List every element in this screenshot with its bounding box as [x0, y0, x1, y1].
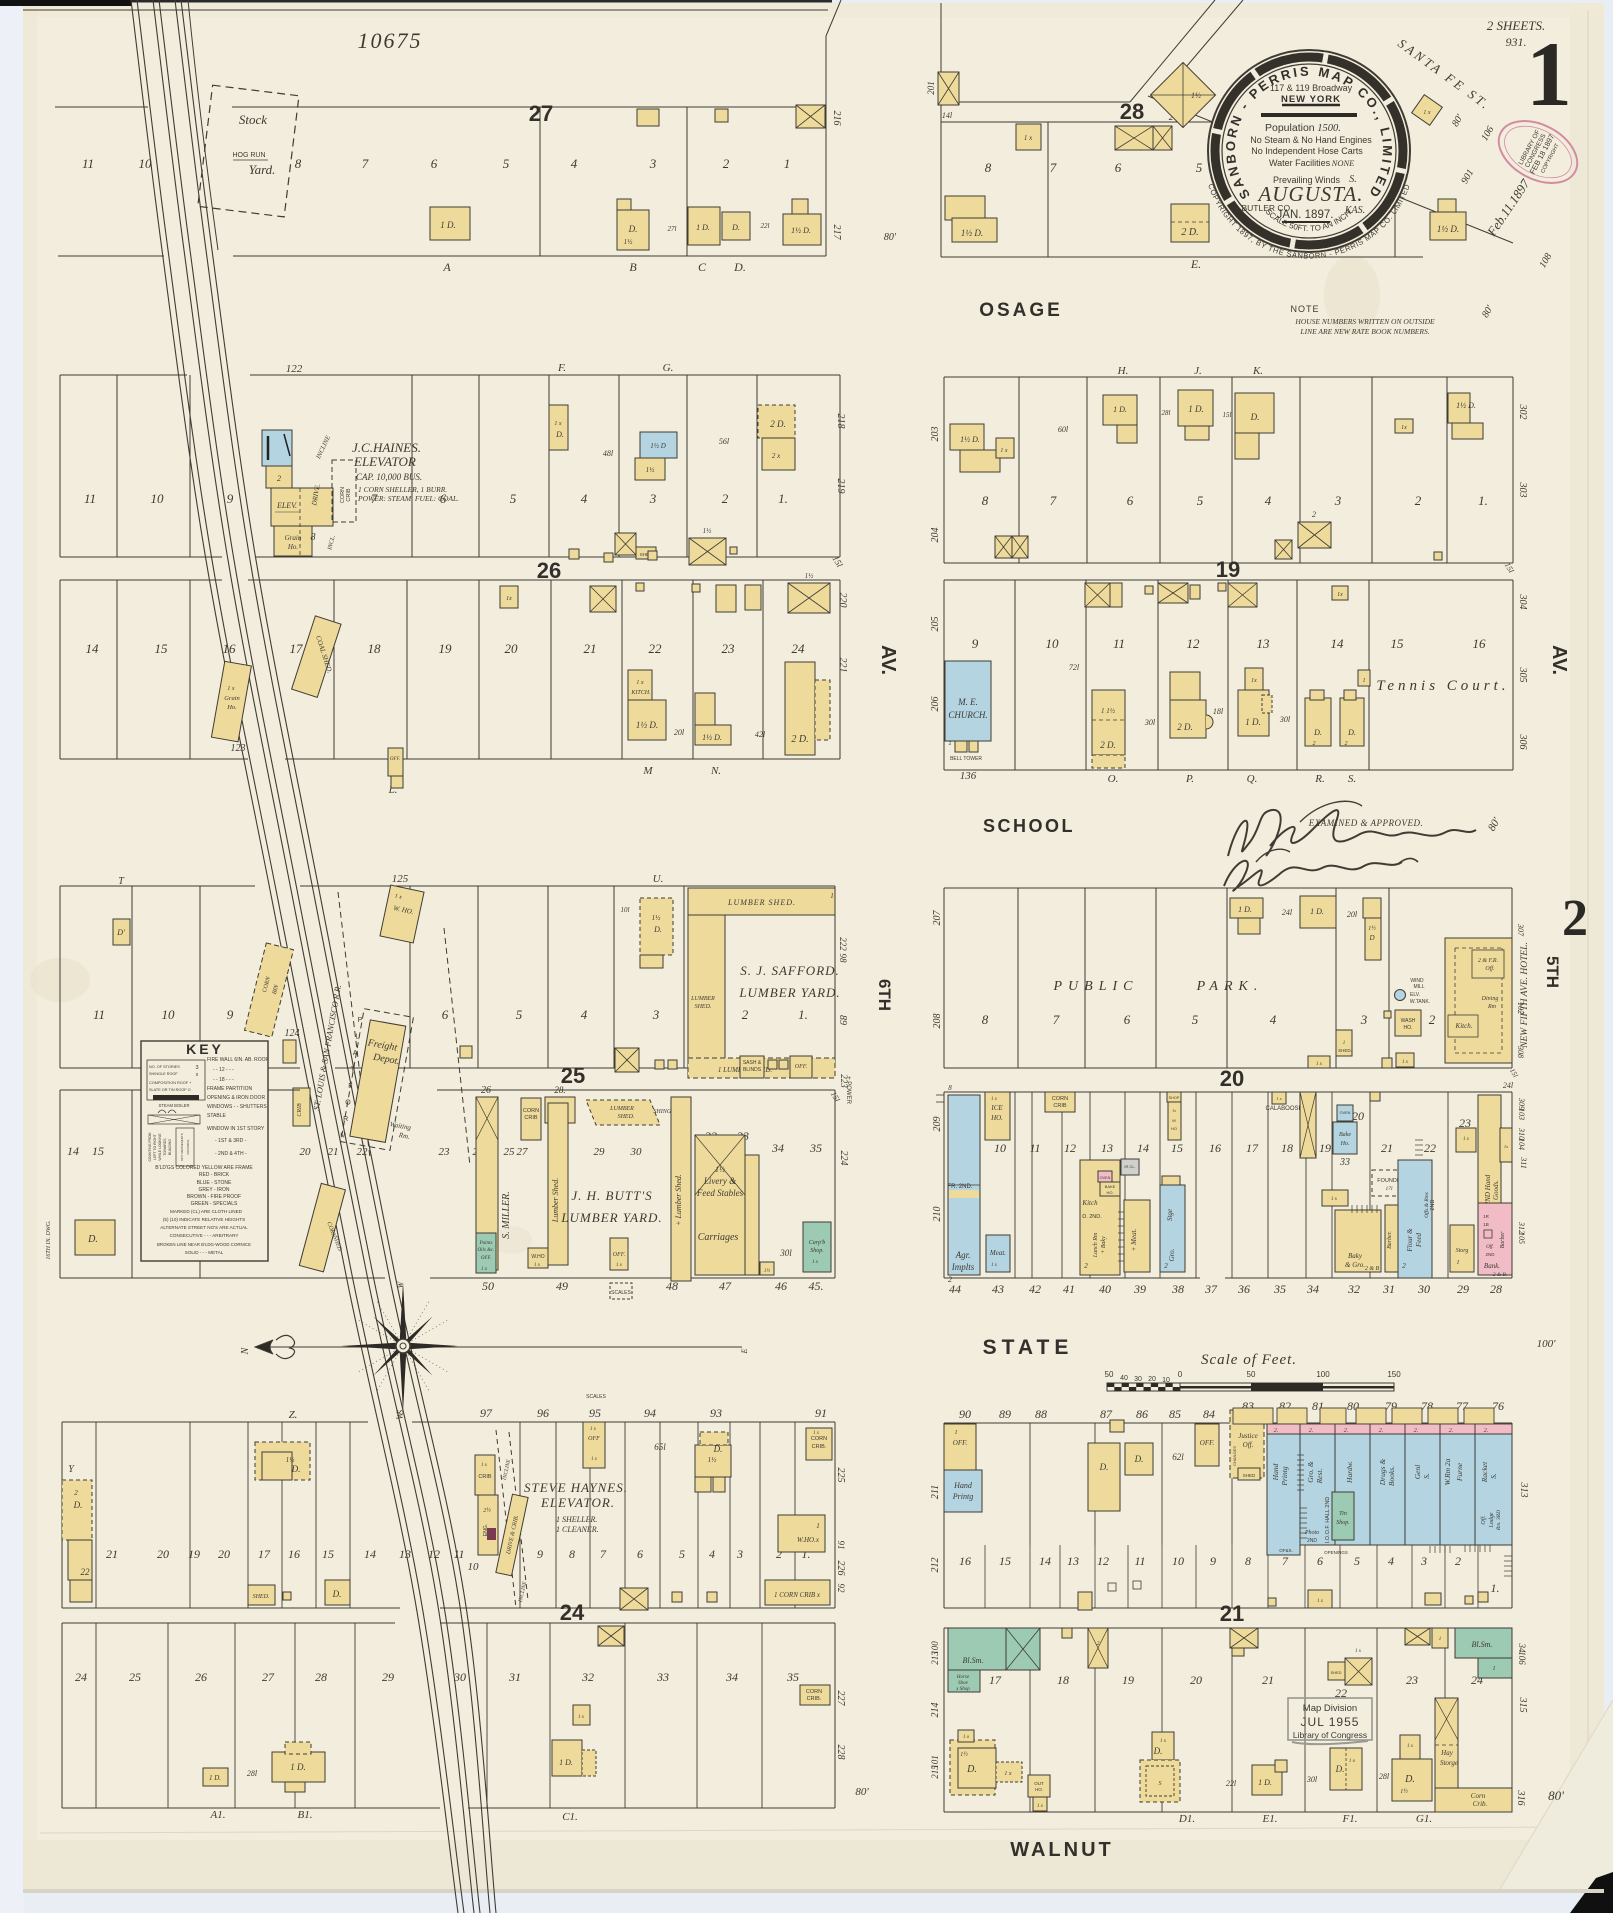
svg-text:A1.: A1.: [210, 1809, 226, 1821]
svg-text:Water Facilities: Water Facilities: [1269, 158, 1331, 168]
svg-text:97: 97: [480, 1406, 493, 1420]
svg-text:212: 212: [930, 1558, 941, 1573]
svg-text:B1.: B1.: [298, 1809, 313, 1821]
svg-text:38: 38: [1171, 1282, 1184, 1296]
svg-text:24: 24: [560, 1600, 585, 1625]
svg-text:1 x: 1 x: [991, 1097, 998, 1102]
svg-text:14l: 14l: [942, 111, 953, 120]
svg-text:1 D.: 1 D.: [290, 1762, 306, 1772]
svg-text:95: 95: [589, 1406, 601, 1420]
svg-text:311: 311: [1519, 1156, 1528, 1168]
svg-text:Q.: Q.: [1247, 773, 1258, 785]
svg-text:D.: D.: [713, 1444, 723, 1454]
svg-text:26: 26: [537, 558, 561, 583]
svg-text:16TH IN. DWG.: 16TH IN. DWG.: [46, 1220, 52, 1259]
svg-text:K.: K.: [1252, 365, 1263, 377]
svg-text:20l: 20l: [1347, 910, 1358, 919]
svg-text:10: 10: [151, 491, 165, 506]
svg-text:FIRE WALL 6IN. AB. ROOF: FIRE WALL 6IN. AB. ROOF: [207, 1057, 269, 1063]
svg-text:2: 2: [742, 1007, 749, 1022]
svg-text:13: 13: [1257, 636, 1271, 651]
svg-text:OF&S.: OF&S.: [1279, 1548, 1293, 1553]
svg-text:1½: 1½: [652, 914, 662, 922]
svg-text:1½ D.: 1½ D.: [791, 226, 811, 235]
svg-text:1: 1: [955, 1430, 958, 1436]
svg-text:2.: 2.: [1414, 1428, 1419, 1434]
svg-text:136: 136: [960, 770, 977, 782]
svg-text:TOWARDS: TOWARDS: [163, 1138, 167, 1156]
svg-text:D.: D.: [1134, 1454, 1144, 1464]
svg-text:2: 2: [1429, 1012, 1436, 1027]
svg-text:14: 14: [86, 641, 100, 656]
svg-text:7: 7: [1053, 1012, 1060, 1027]
svg-text:SHOP: SHOP: [1169, 1096, 1180, 1100]
svg-text:+ POWER: + POWER: [845, 1076, 851, 1105]
svg-text:24: 24: [792, 641, 806, 656]
svg-text:8: 8: [985, 160, 992, 175]
svg-text:Carp'b: Carp'b: [809, 1240, 826, 1246]
svg-text:JUL 1955: JUL 1955: [1301, 1715, 1360, 1729]
svg-text:125: 125: [392, 873, 409, 885]
svg-text:15: 15: [999, 1554, 1011, 1568]
svg-text:7: 7: [1282, 1554, 1289, 1568]
svg-text:1x: 1x: [1251, 678, 1257, 684]
svg-text:2: 2: [1562, 890, 1588, 947]
svg-text:2ND Hand: 2ND Hand: [1484, 1174, 1492, 1205]
svg-text:Livery &: Livery &: [703, 1176, 736, 1186]
svg-text:1 CLEANER.: 1 CLEANER.: [556, 1525, 599, 1534]
svg-text:100: 100: [1316, 1370, 1330, 1379]
svg-text:30: 30: [453, 1670, 466, 1684]
svg-text:204: 204: [930, 528, 941, 543]
svg-text:HO.: HO.: [990, 1114, 1003, 1122]
svg-text:KITCH.: KITCH.: [630, 690, 650, 696]
svg-text:LUMBER YARD.: LUMBER YARD.: [560, 1210, 662, 1225]
svg-text:HOG RUN: HOG RUN: [232, 152, 265, 159]
svg-text:LUMBER SHED.: LUMBER SHED.: [727, 898, 796, 907]
svg-text:1: 1: [1493, 1666, 1496, 1672]
svg-text:18: 18: [1057, 1673, 1069, 1687]
svg-text:- - 18 - - -: - - 18 - - -: [213, 1077, 234, 1083]
svg-text:CORN: CORN: [523, 1108, 539, 1114]
svg-text:J.: J.: [1194, 365, 1202, 377]
svg-text:1 o: 1 o: [963, 1735, 970, 1740]
svg-text:21: 21: [1220, 1601, 1244, 1626]
svg-text:SLATE OR TIN ROOF O: SLATE OR TIN ROOF O: [149, 1088, 191, 1092]
svg-text:CRIB: CRIB: [524, 1115, 537, 1121]
svg-text:220: 220: [837, 593, 848, 608]
svg-text:O.: O.: [1108, 773, 1119, 785]
svg-text:14: 14: [364, 1547, 376, 1561]
svg-text:1: 1: [816, 1522, 820, 1530]
svg-text:48l: 48l: [603, 449, 614, 458]
svg-text:D.: D.: [73, 1500, 83, 1510]
svg-text:26: 26: [481, 1085, 491, 1096]
svg-text:1½: 1½: [1368, 925, 1376, 932]
svg-text:Rm: Rm: [1487, 1004, 1497, 1010]
svg-text:Grain: Grain: [285, 534, 302, 542]
svg-text:49: 49: [556, 1279, 568, 1293]
svg-text:28.: 28.: [554, 1085, 565, 1095]
svg-text:10675: 10675: [358, 28, 423, 53]
svg-text:2.: 2.: [1484, 1428, 1489, 1434]
svg-text:D.: D.: [291, 1464, 301, 1474]
svg-text:2 D.: 2 D.: [1177, 722, 1193, 732]
svg-text:303: 303: [1517, 482, 1528, 498]
svg-text:1x: 1x: [1504, 1144, 1508, 1149]
svg-text:29: 29: [382, 1670, 394, 1684]
svg-text:G.: G.: [663, 362, 674, 374]
svg-text:117 & 119 Broadway: 117 & 119 Broadway: [1270, 83, 1353, 93]
svg-text:1½: 1½: [960, 1751, 968, 1758]
svg-text:1x: 1x: [1172, 1108, 1176, 1113]
svg-text:R.: R.: [1314, 773, 1324, 785]
svg-text:14: 14: [1331, 636, 1345, 651]
svg-text:20: 20: [218, 1547, 230, 1561]
svg-text:10: 10: [162, 1007, 176, 1022]
svg-text:315: 315: [1517, 1697, 1528, 1713]
svg-text:GREEN - SPECIALS: GREEN - SPECIALS: [191, 1201, 238, 1207]
svg-text:Drugs &: Drugs &: [1378, 1459, 1387, 1487]
svg-text:Off.: Off.: [1486, 1245, 1494, 1250]
svg-text:1½ D.: 1½ D.: [1456, 401, 1476, 410]
svg-text:Ho.: Ho.: [287, 543, 299, 551]
svg-text:D: D: [1368, 934, 1374, 942]
svg-text:1 D.: 1 D.: [1188, 404, 1204, 414]
svg-text:214: 214: [930, 1703, 941, 1718]
svg-text:4: 4: [1265, 493, 1272, 508]
svg-text:5: 5: [503, 156, 510, 171]
svg-text:Rest.: Rest.: [1315, 1468, 1324, 1484]
svg-text:1 x: 1 x: [554, 421, 562, 427]
svg-text:MILL: MILL: [1413, 984, 1424, 990]
svg-text:x Shop: x Shop: [955, 1687, 970, 1692]
svg-text:42l: 42l: [755, 730, 766, 739]
svg-text:3: 3: [649, 491, 657, 506]
svg-text:104: 104: [1517, 1138, 1526, 1150]
svg-text:1½: 1½: [646, 466, 656, 474]
svg-text:42: 42: [1029, 1282, 1041, 1296]
svg-text:Ho.: Ho.: [226, 704, 237, 711]
svg-text:2.: 2.: [1379, 1428, 1384, 1434]
svg-text:F1.: F1.: [1342, 1813, 1358, 1825]
svg-text:3: 3: [195, 1065, 198, 1071]
svg-text:SHED: SHED: [1330, 1670, 1341, 1675]
svg-text:17: 17: [258, 1547, 271, 1561]
svg-text:15: 15: [1391, 636, 1405, 651]
svg-text:14: 14: [67, 1144, 79, 1158]
svg-text:36: 36: [1237, 1282, 1250, 1296]
svg-text:W.TANK.: W.TANK.: [1410, 999, 1430, 1005]
svg-text:60l: 60l: [1058, 425, 1069, 434]
svg-text:D': D': [116, 928, 125, 937]
svg-text:3: 3: [1420, 1554, 1427, 1568]
svg-text:SHINGLE ROOF: SHINGLE ROOF: [149, 1072, 178, 1076]
svg-text:20: 20: [505, 641, 519, 656]
svg-text:1½: 1½: [805, 572, 815, 580]
svg-text:1 D.: 1 D.: [1310, 907, 1324, 916]
svg-text:Horse: Horse: [956, 1675, 970, 1680]
svg-text:1: 1: [1526, 23, 1572, 125]
svg-text:Hand: Hand: [1271, 1463, 1280, 1481]
svg-text:BROWN - FIRE PROOF: BROWN - FIRE PROOF: [187, 1194, 241, 1200]
svg-text:28: 28: [1490, 1282, 1502, 1296]
svg-text:OFF.: OFF.: [481, 1256, 492, 1261]
svg-text:P.: P.: [1185, 773, 1194, 785]
svg-text:50: 50: [1247, 1370, 1256, 1379]
svg-text:NO. OF STORIES: NO. OF STORIES: [149, 1065, 180, 1069]
svg-text:Stge: Stge: [1166, 1209, 1174, 1221]
svg-text:1½ D.: 1½ D.: [702, 733, 722, 742]
svg-text:2: 2: [948, 1275, 952, 1284]
svg-text:304: 304: [1517, 594, 1528, 610]
svg-text:Flour &: Flour &: [1406, 1228, 1414, 1253]
svg-text:18l: 18l: [1213, 707, 1224, 716]
svg-text:4: 4: [581, 491, 588, 506]
svg-text:+ Baky: + Baky: [1101, 1236, 1107, 1254]
svg-text:Agr.: Agr.: [955, 1250, 971, 1260]
svg-text:- - 12 - - -: - - 12 - - -: [213, 1067, 234, 1073]
svg-text:C: C: [698, 260, 707, 274]
svg-text:FOUNDN: FOUNDN: [1377, 1178, 1401, 1184]
svg-text:LUMBER YARD.: LUMBER YARD.: [738, 985, 840, 1000]
svg-text:Implts: Implts: [951, 1262, 975, 1272]
svg-text:16: 16: [223, 641, 237, 656]
svg-text:2.: 2.: [1309, 1428, 1314, 1434]
svg-text:1 CORN SHELLER, 1 BURR.: 1 CORN SHELLER, 1 BURR.: [358, 485, 447, 494]
svg-text:Kitch.: Kitch.: [1455, 1022, 1473, 1030]
svg-text:ELEVATOR: ELEVATOR: [353, 454, 416, 469]
svg-text:4: 4: [581, 1007, 588, 1022]
svg-text:1 x: 1 x: [1000, 448, 1008, 454]
svg-text:28: 28: [1120, 99, 1144, 124]
svg-text:201: 201: [926, 81, 936, 95]
svg-text:2 & B.: 2 & B.: [1493, 1272, 1508, 1278]
svg-text:Offs.& Rms: Offs.& Rms: [1423, 1192, 1430, 1218]
svg-text:210: 210: [932, 1207, 943, 1222]
svg-text:20: 20: [1352, 1109, 1364, 1123]
svg-text:D. 2ND.: D. 2ND.: [1082, 1214, 1102, 1220]
svg-text:39: 39: [1133, 1282, 1146, 1296]
svg-text:Bake: Bake: [1339, 1132, 1351, 1138]
svg-text:3: 3: [652, 1007, 660, 1022]
svg-text:1 x: 1 x: [1037, 1804, 1044, 1809]
svg-text:D1.: D1.: [1178, 1813, 1195, 1825]
svg-text:28: 28: [315, 1670, 327, 1684]
svg-text:SHED.: SHED.: [253, 1594, 270, 1600]
svg-text:SHED.: SHED.: [1338, 1048, 1352, 1053]
svg-text:1: 1: [830, 892, 834, 900]
svg-text:OUT: OUT: [1034, 1781, 1044, 1786]
svg-text:Barber.: Barber.: [1387, 1231, 1393, 1249]
svg-text:D.: D.: [555, 430, 564, 439]
svg-text:1½ D.: 1½ D.: [961, 228, 983, 238]
svg-text:1 x: 1 x: [812, 1260, 819, 1265]
svg-text:10: 10: [994, 1141, 1006, 1155]
svg-text:47: 47: [719, 1279, 732, 1293]
svg-text:ALTERNATE STREET NO'S ARE ACTU: ALTERNATE STREET NO'S ARE ACTUAL: [160, 1225, 248, 1230]
svg-text:+ Meat.: + Meat.: [1130, 1228, 1138, 1251]
svg-text:23: 23: [439, 1146, 451, 1158]
svg-text:87: 87: [1100, 1407, 1113, 1421]
svg-text:1 x: 1 x: [1463, 1137, 1470, 1142]
svg-text:HO: HO: [1171, 1126, 1177, 1131]
svg-text:228: 228: [835, 1745, 846, 1760]
svg-text:27: 27: [529, 101, 553, 126]
svg-text:D.: D.: [731, 223, 740, 232]
svg-text:NEW YORK: NEW YORK: [1281, 94, 1341, 105]
svg-text:6TH: 6TH: [875, 979, 894, 1011]
svg-text:EXAMINED & APPROVED.: EXAMINED & APPROVED.: [1308, 818, 1424, 828]
svg-text:1½: 1½: [708, 1456, 718, 1464]
svg-text:Furne: Furne: [1455, 1462, 1464, 1482]
svg-text:215: 215: [930, 1765, 940, 1779]
svg-text:CALABOOSE: CALABOOSE: [1265, 1106, 1302, 1112]
svg-text:Baky: Baky: [1348, 1252, 1363, 1260]
svg-text:BELL TOWER: BELL TOWER: [950, 756, 982, 762]
svg-text:8: 8: [311, 532, 316, 543]
svg-text:S: S: [1159, 1781, 1162, 1787]
svg-text:S.: S.: [1348, 773, 1356, 785]
svg-text:12: 12: [1187, 636, 1201, 651]
svg-text:E1.: E1.: [1262, 1813, 1278, 1825]
svg-text:5: 5: [679, 1547, 685, 1561]
svg-text:1.: 1.: [778, 491, 788, 506]
svg-text:6: 6: [442, 1007, 449, 1022]
svg-text:5TH: 5TH: [1543, 956, 1562, 988]
svg-text:Feed: Feed: [1415, 1233, 1423, 1248]
svg-text:93: 93: [710, 1406, 722, 1420]
svg-text:45.: 45.: [809, 1279, 824, 1293]
svg-text:1 x: 1 x: [1317, 1599, 1324, 1604]
svg-text:Carriages: Carriages: [698, 1232, 739, 1243]
svg-text:19: 19: [188, 1547, 200, 1561]
svg-text:13: 13: [399, 1547, 411, 1561]
svg-text:307: 307: [1516, 923, 1525, 937]
svg-text:2.: 2.: [1344, 1428, 1349, 1434]
svg-text:26: 26: [195, 1670, 207, 1684]
svg-text:19: 19: [1122, 1673, 1134, 1687]
svg-text:103: 103: [1517, 1108, 1526, 1120]
svg-text:34: 34: [771, 1141, 784, 1155]
svg-text:98: 98: [838, 954, 848, 964]
svg-text:5: 5: [1192, 1012, 1199, 1027]
svg-text:302: 302: [1517, 404, 1528, 420]
svg-text:D.: D.: [1153, 1746, 1163, 1756]
svg-text:CORN: CORN: [806, 1689, 822, 1695]
svg-text:28l: 28l: [1162, 409, 1171, 417]
svg-text:Off.: Off.: [1485, 965, 1494, 972]
svg-text:SCALES: SCALES: [586, 1394, 606, 1400]
svg-text:1 x: 1 x: [813, 1431, 820, 1436]
svg-text:221: 221: [837, 658, 848, 673]
svg-text:NOT REPRESENTS: NOT REPRESENTS: [180, 1133, 184, 1160]
svg-text:80': 80': [884, 232, 897, 243]
svg-text:8: 8: [295, 156, 302, 171]
svg-text:19: 19: [1216, 557, 1240, 582]
svg-text:1 x: 1 x: [1160, 1739, 1167, 1744]
svg-text:E: E: [740, 1348, 749, 1354]
svg-text:No Steam & No Hand Engines: No Steam & No Hand Engines: [1250, 135, 1372, 145]
svg-text:46: 46: [775, 1279, 787, 1293]
svg-text:1 x: 1 x: [636, 680, 644, 686]
svg-text:OFF: OFF: [588, 1436, 600, 1442]
svg-text:7: 7: [1050, 160, 1057, 175]
svg-text:D.: D.: [628, 224, 638, 234]
svg-text:1 D.: 1 D.: [696, 223, 710, 232]
svg-text:Crib.: Crib.: [1473, 1800, 1488, 1808]
svg-text:SHED.: SHED.: [618, 1114, 635, 1120]
svg-text:Stock: Stock: [239, 112, 267, 127]
svg-text:1 x: 1 x: [1402, 1060, 1409, 1065]
svg-text:D.: D.: [966, 1764, 977, 1775]
svg-text:22: 22: [357, 1146, 369, 1158]
svg-text:2: 2: [722, 491, 729, 506]
svg-text:B'LD'GS COLORED YELLOW ARE FRA: B'LD'GS COLORED YELLOW ARE FRAME: [155, 1165, 253, 1171]
svg-text:35: 35: [786, 1670, 799, 1684]
svg-text:32: 32: [581, 1670, 594, 1684]
svg-text:Tennis Court.: Tennis Court.: [1376, 678, 1509, 694]
svg-text:5: 5: [1196, 160, 1203, 175]
svg-text:CHANGES: CHANGES: [1232, 1446, 1237, 1466]
svg-text:22: 22: [1424, 1141, 1436, 1155]
svg-text:M: M: [642, 765, 653, 777]
svg-text:& Gro.: & Gro.: [1345, 1261, 1365, 1269]
svg-text:21: 21: [1262, 1673, 1274, 1687]
svg-text:1500.: 1500.: [1317, 123, 1341, 134]
svg-text:2ND: 2ND: [1485, 1252, 1495, 1257]
svg-text:D.: D.: [332, 1589, 342, 1599]
svg-text:24l: 24l: [1503, 1081, 1514, 1090]
svg-text:65l: 65l: [654, 1442, 666, 1452]
svg-text:A: A: [442, 260, 451, 274]
svg-text:Map Division: Map Division: [1303, 1703, 1357, 1714]
svg-text:4: 4: [1270, 1012, 1277, 1027]
svg-text:86: 86: [1136, 1407, 1148, 1421]
svg-text:105: 105: [1517, 1232, 1526, 1244]
svg-text:1 x: 1 x: [1331, 1197, 1338, 1202]
svg-text:Gro. &: Gro. &: [1306, 1461, 1315, 1483]
svg-text:37: 37: [1204, 1282, 1218, 1296]
svg-text:1 x: 1 x: [1024, 134, 1033, 142]
svg-text:33: 33: [656, 1670, 669, 1684]
svg-text:2 D.: 2 D.: [791, 734, 808, 745]
svg-text:1½ D.: 1½ D.: [960, 435, 980, 444]
svg-text:1 x: 1 x: [1355, 1649, 1362, 1654]
svg-text:1 x: 1 x: [1423, 110, 1431, 116]
svg-text:44: 44: [949, 1282, 961, 1296]
svg-text:2: 2: [949, 741, 952, 747]
svg-text:1½: 1½: [1400, 1788, 1408, 1795]
svg-text:5: 5: [1197, 493, 1204, 508]
svg-text:62l: 62l: [1172, 1452, 1184, 1462]
svg-text:1 x: 1 x: [227, 686, 235, 692]
svg-text:90: 90: [959, 1407, 971, 1421]
svg-text:D.: D.: [1347, 728, 1356, 737]
svg-text:AV.: AV.: [1548, 645, 1570, 675]
svg-text:931.: 931.: [1506, 35, 1527, 49]
svg-text:ELEVATOR.: ELEVATOR.: [540, 1495, 615, 1510]
svg-text:1½ D: 1½ D: [650, 442, 666, 450]
svg-text:1 D.: 1 D.: [1238, 905, 1252, 914]
svg-text:D.: D.: [87, 1234, 98, 1245]
svg-text:Kitch: Kitch: [1081, 1199, 1098, 1207]
svg-text:Goods.: Goods.: [1492, 1180, 1500, 1200]
svg-text:1 x: 1 x: [590, 1427, 597, 1432]
svg-text:16: 16: [959, 1554, 971, 1568]
svg-text:WASH: WASH: [1401, 1018, 1416, 1024]
svg-text:CRIB.: CRIB.: [812, 1444, 827, 1450]
